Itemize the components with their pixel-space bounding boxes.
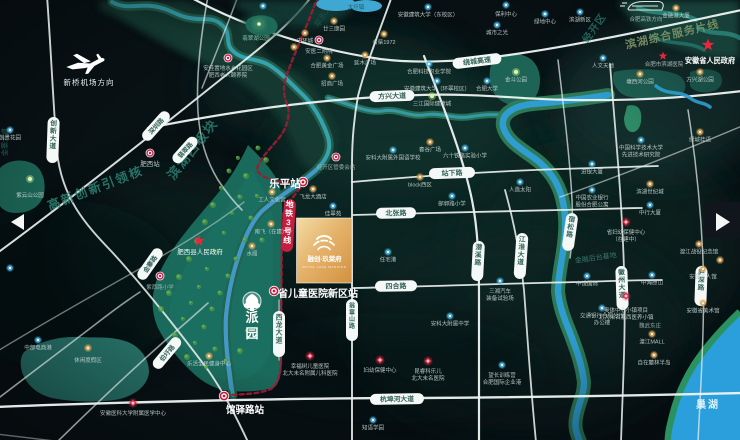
svg-text:安佳置地水乡花园区: 安佳置地水乡花园区 — [203, 64, 253, 72]
svg-text:中海原山: 中海原山 — [641, 279, 663, 287]
svg-text:人文天地: 人文天地 — [592, 62, 615, 70]
svg-text:奥体中心小镇项目: 奥体中心小镇项目 — [604, 306, 648, 314]
svg-text:馆驿路站: 馆驿路站 — [226, 404, 265, 416]
svg-text:城市之光: 城市之光 — [486, 29, 509, 37]
svg-text:肥西老人颐养院: 肥西老人颐养院 — [209, 71, 248, 79]
svg-text:水阁: 水阁 — [246, 250, 257, 258]
svg-text:金融港大厦: 金融港大厦 — [662, 12, 690, 20]
svg-text:肥西站: 肥西站 — [140, 159, 160, 168]
svg-text:安徽建筑大学（东校区）: 安徽建筑大学（东校区） — [398, 11, 459, 19]
svg-text:创景花园: 创景花园 — [0, 134, 21, 142]
svg-text:省儿童医院新区站: 省儿童医院新区站 — [277, 287, 358, 300]
svg-text:昆睿科乐儿: 昆睿科乐儿 — [414, 367, 442, 375]
svg-text:幸福树儿童医院: 幸福树儿童医院 — [291, 362, 330, 370]
svg-text:北张路: 北张路 — [385, 208, 407, 217]
svg-text:合肥市滨湖医院: 合肥市滨湖医院 — [645, 60, 684, 68]
svg-text:北大未名医院: 北大未名医院 — [411, 374, 445, 382]
svg-text:中部电商港: 中部电商港 — [24, 344, 52, 352]
svg-text:中设国际: 中设国际 — [576, 280, 599, 288]
svg-text:安徽建筑大学（环翠校区）: 安徽建筑大学（环翠校区） — [404, 85, 470, 93]
svg-text:廿三康园: 廿三康园 — [323, 25, 346, 33]
svg-text:股份合肥公寓: 股份合肥公寓 — [575, 201, 609, 209]
svg-text:合肥高铁方向: 合肥高铁方向 — [629, 15, 662, 23]
svg-text:绿地中心: 绿地中心 — [534, 18, 557, 26]
svg-text:中行大厦: 中行大厦 — [639, 209, 662, 217]
svg-text:保利中心: 保利中心 — [495, 10, 518, 18]
svg-text:渡江战役纪念馆: 渡江战役纪念馆 — [680, 248, 719, 256]
svg-text:三湘汽车: 三湘汽车 — [489, 287, 512, 295]
svg-text:中国农业银行: 中国农业银行 — [575, 194, 609, 202]
svg-text:安科大附属中学: 安科大附属中学 — [431, 320, 470, 328]
svg-text:魏武东庄: 魏武东庄 — [639, 322, 662, 330]
svg-text:block西区: block西区 — [408, 182, 432, 189]
svg-text:省妇幼保健中心: 省妇幼保健中心 — [607, 228, 646, 236]
svg-text:合肥国际企业港: 合肥国际企业港 — [483, 378, 522, 386]
svg-text:六十铁路实验小学: 六十铁路实验小学 — [443, 152, 488, 160]
svg-text:延木广场: 延木广场 — [354, 59, 377, 67]
svg-text:四合路: 四合路 — [385, 281, 407, 290]
svg-text:合肥大学: 合肥大学 — [476, 85, 499, 93]
svg-text:邮郭路小学: 邮郭路小学 — [438, 200, 466, 208]
svg-text:派园: 派园 — [245, 310, 259, 341]
svg-text:绿城桂语: 绿城桂语 — [689, 136, 712, 144]
svg-text:安徽省美术馆: 安徽省美术馆 — [686, 307, 720, 315]
svg-text:合柴1972: 合柴1972 — [372, 38, 395, 46]
svg-text:自在麓林半岛: 自在麓林半岛 — [637, 359, 671, 367]
svg-text:先进技术研究院: 先进技术研究院 — [622, 151, 661, 159]
svg-text:新桥机场方向: 新桥机场方向 — [64, 77, 115, 87]
svg-text:安医二附院: 安医二附院 — [305, 47, 333, 55]
svg-text:北大未名附属儿科医院: 北大未名附属儿科医院 — [282, 369, 338, 377]
svg-text:（在建中）: （在建中） — [612, 235, 640, 243]
svg-text:招商广场: 招商广场 — [321, 80, 344, 88]
svg-text:安徽名人馆: 安徽名人馆 — [689, 273, 717, 281]
svg-text:中国科学技术大学: 中国科学技术大学 — [619, 144, 664, 152]
svg-text:滨湖新区: 滨湖新区 — [569, 16, 592, 24]
svg-text:安科大附属外国语学校: 安科大附属外国语学校 — [365, 154, 421, 162]
svg-text:望长训练营: 望长训练营 — [488, 371, 516, 379]
svg-text:乐活全民健身中心: 乐活全民健身中心 — [187, 360, 232, 368]
svg-text:乐平站: 乐平站 — [269, 177, 301, 190]
svg-text:创新大道: 创新大道 — [48, 118, 57, 150]
svg-text:南飞（在建）: 南飞（在建） — [254, 228, 287, 236]
svg-text:融创·玖棠府: 融创·玖棠府 — [307, 254, 342, 263]
svg-text:肥西县人民政府: 肥西县人民政府 — [177, 247, 223, 256]
svg-text:合肥科技职业学院: 合肥科技职业学院 — [407, 68, 452, 76]
svg-text:方兴湖公园: 方兴湖公园 — [686, 76, 714, 84]
svg-text:塘西河公园: 塘西河公园 — [626, 78, 654, 86]
svg-text:ROYAL LAKE MANSION: ROYAL LAKE MANSION — [303, 265, 347, 269]
svg-text:休闲度假区: 休闲度假区 — [74, 356, 102, 364]
svg-text:巢湖: 巢湖 — [695, 398, 720, 411]
svg-text:安徽省人民政府: 安徽省人民政府 — [685, 56, 735, 65]
svg-text:三江国际健康城: 三江国际健康城 — [413, 100, 452, 108]
svg-text:紫西路小学: 紫西路小学 — [146, 283, 174, 291]
svg-text:翁章山路: 翁章山路 — [349, 302, 356, 330]
svg-text:佳翠苑: 佳翠苑 — [325, 210, 342, 218]
svg-text:人造太阳: 人造太阳 — [509, 186, 531, 194]
svg-text:飞龙大酒店: 飞龙大酒店 — [299, 193, 327, 201]
svg-text:金斗公园: 金斗公园 — [505, 76, 528, 84]
svg-text:进银大厦: 进银大厦 — [581, 168, 604, 176]
svg-text:知语学园: 知语学园 — [362, 424, 385, 432]
svg-text:大圩镇: 大圩镇 — [348, 3, 365, 11]
svg-text:工人文化宫: 工人文化宫 — [258, 196, 286, 204]
svg-text:妇幼保健中心: 妇幼保健中心 — [363, 366, 397, 374]
svg-text:安徽医科大学附属医学中心: 安徽医科大学附属医学中心 — [100, 409, 167, 417]
svg-text:滨湖世纪城: 滨湖世纪城 — [636, 188, 664, 196]
svg-text:任宅港: 任宅港 — [380, 256, 397, 264]
svg-text:翡翠湖公园: 翡翠湖公园 — [242, 34, 270, 42]
svg-text:春谷广场: 春谷广场 — [419, 146, 442, 154]
svg-text:渡江MALL: 渡江MALL — [639, 338, 664, 346]
svg-text:西龙大道: 西龙大道 — [275, 314, 283, 345]
svg-text:北大未名肥西医养小镇: 北大未名肥西医养小镇 — [598, 313, 654, 321]
svg-text:合肥黄金广场: 合肥黄金广场 — [310, 62, 344, 70]
svg-text:经开区管委会站: 经开区管委会站 — [317, 163, 356, 171]
svg-text:紫云山公园: 紫云山公园 — [16, 191, 44, 199]
svg-text:装备试验场: 装备试验场 — [486, 294, 514, 302]
svg-text:中环城: 中环城 — [297, 37, 314, 45]
